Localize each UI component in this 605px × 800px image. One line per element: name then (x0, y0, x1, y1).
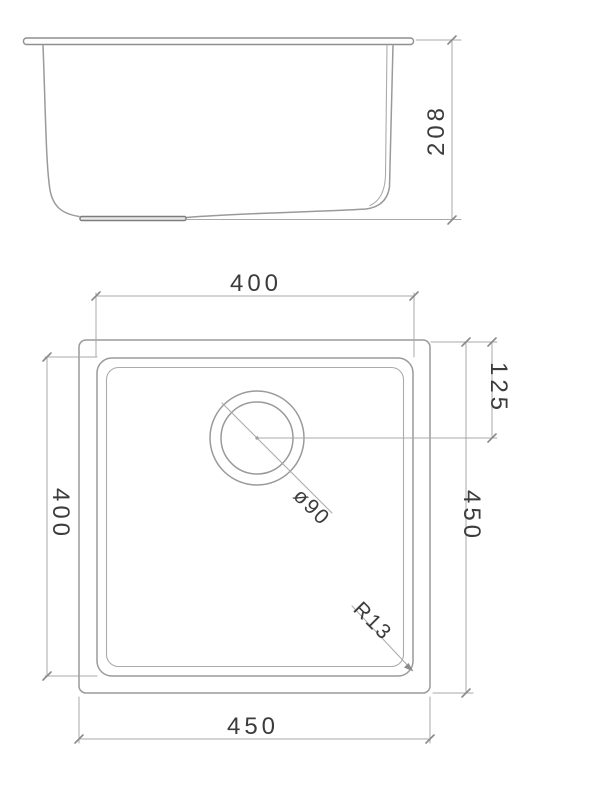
dim-125-label: 125 (485, 362, 512, 414)
dim-depth-208: 208 (416, 36, 461, 224)
dim-400left-label: 400 (47, 488, 74, 540)
dim-450bottom-label: 450 (227, 713, 279, 740)
side-view-rim (24, 38, 414, 45)
top-view: ø90 R13 400 400 (43, 270, 512, 743)
dim-208-label: 208 (423, 104, 450, 156)
dim-bowl-width-400: 400 (92, 270, 418, 357)
dim-400top-label: 400 (230, 270, 282, 297)
side-view-right-wall-inner (370, 45, 387, 206)
drain-diameter-label: ø90 (289, 484, 335, 530)
dim-bowl-length-400: 400 (43, 353, 97, 680)
corner-radius-label: R13 (349, 597, 397, 645)
technical-drawing-canvas: 208 ø90 R13 (0, 0, 605, 800)
side-view-drain-foot (80, 217, 186, 221)
dim-450right-label: 450 (458, 490, 485, 542)
dim-drain-offset-125: 125 (485, 338, 512, 442)
side-view-bottom-and-right-wall (187, 45, 394, 218)
drain: ø90 (210, 391, 497, 530)
side-view: 208 (24, 36, 462, 224)
dim-outer-width-450: 450 (75, 697, 434, 743)
sink-technical-drawing: 208 ø90 R13 (0, 0, 605, 800)
side-view-left-wall (43, 45, 79, 217)
